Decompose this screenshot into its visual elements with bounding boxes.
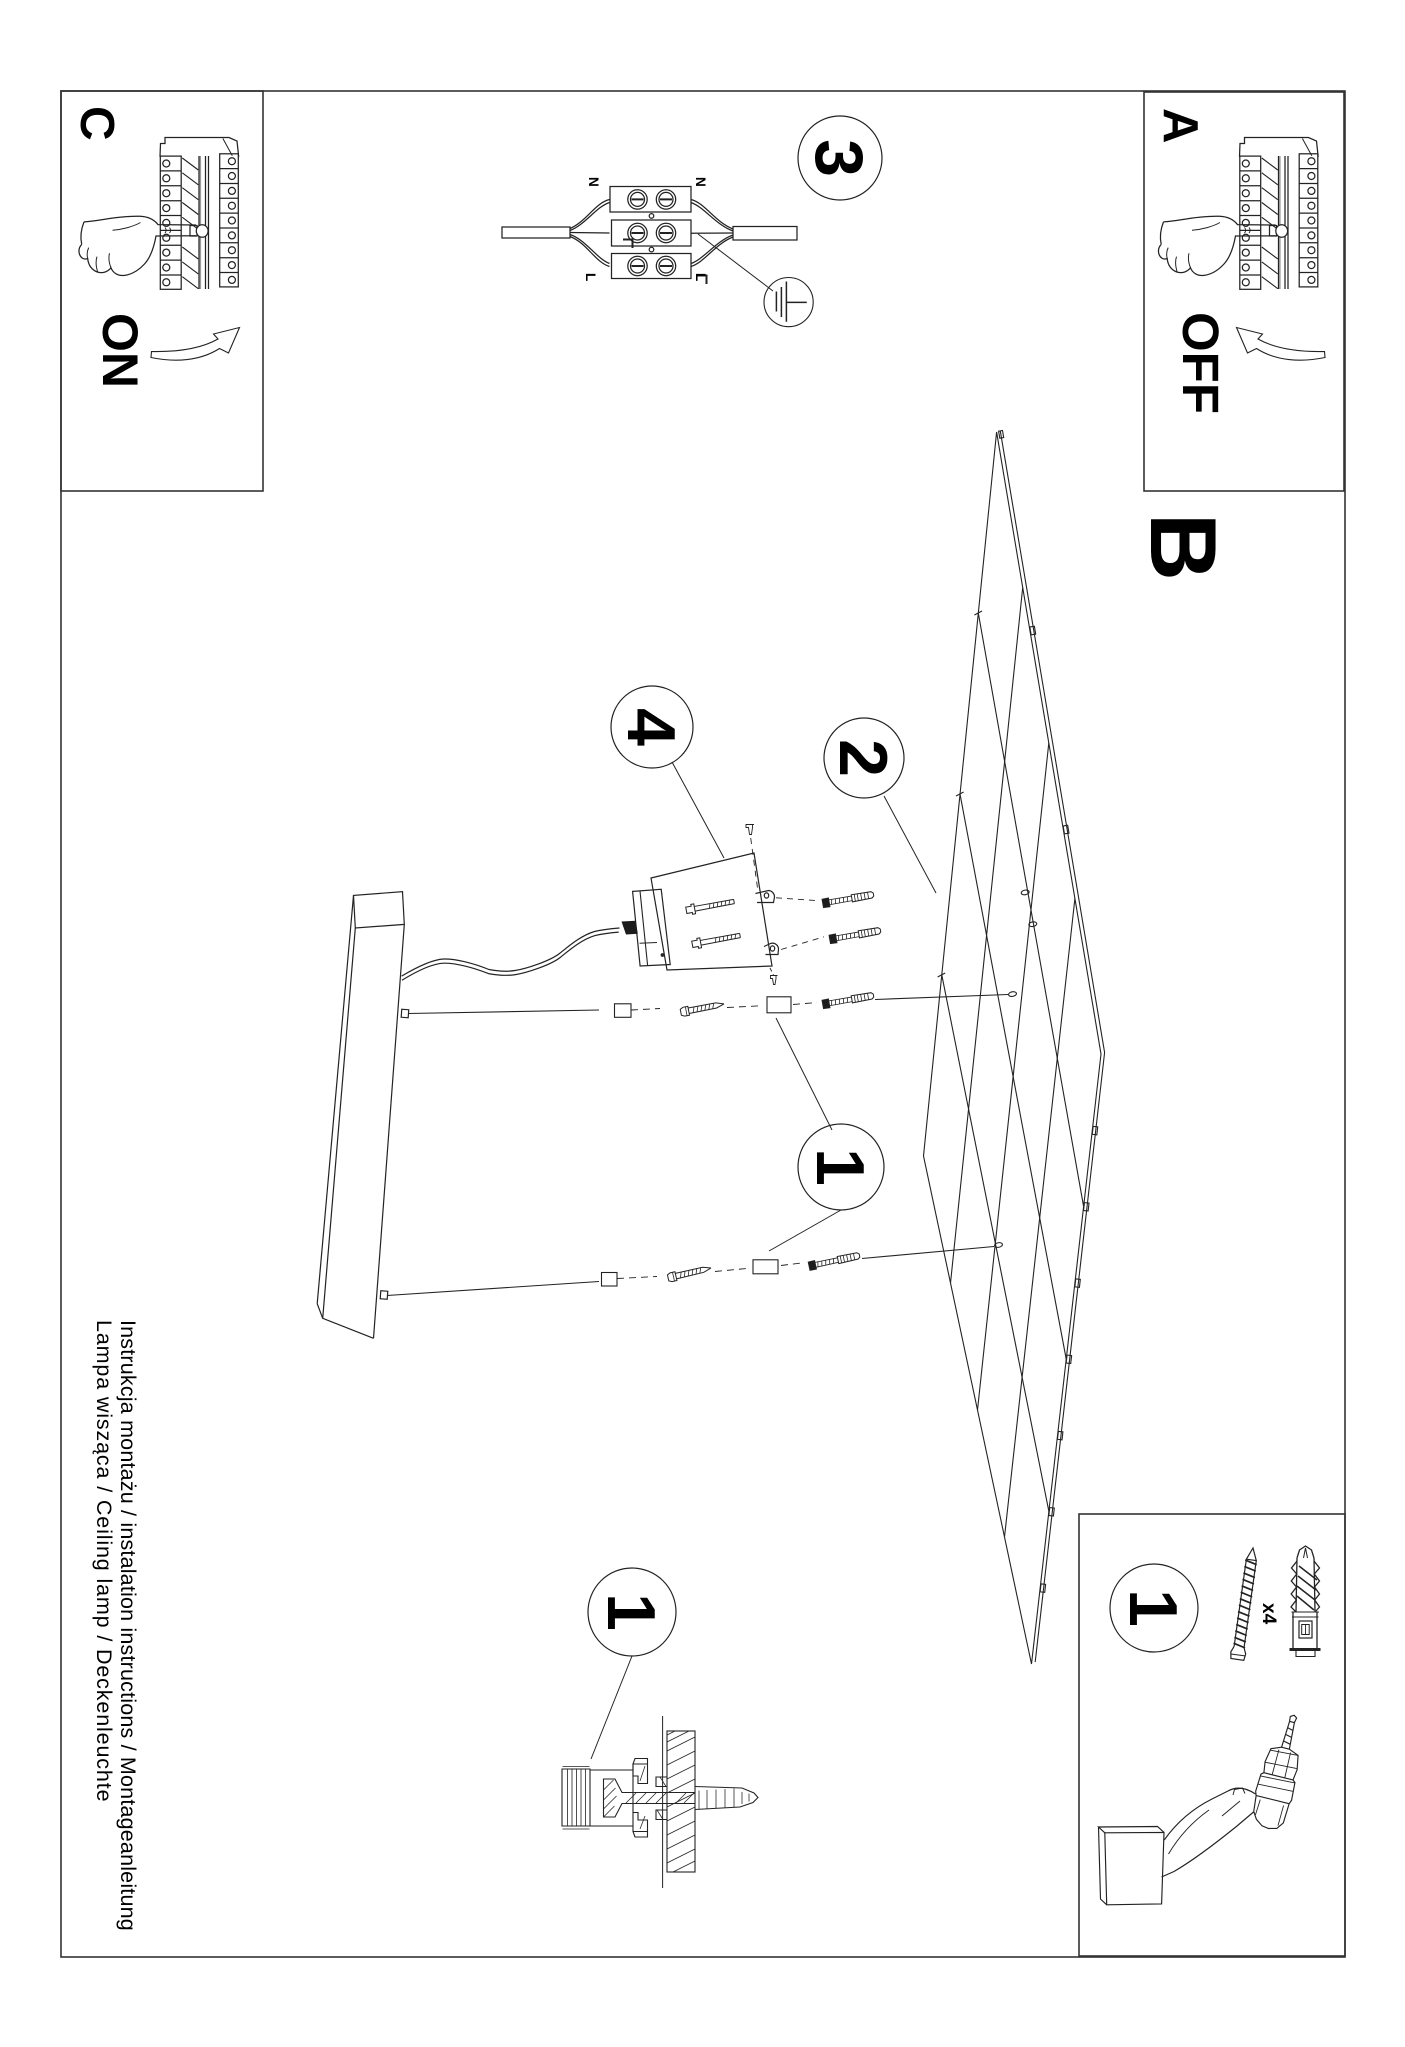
svg-text:Instrukcja montażu / instalati: Instrukcja montażu / instalation instruc… (116, 1320, 140, 1931)
svg-text:N: N (586, 177, 601, 187)
svg-text:L: L (583, 273, 598, 281)
svg-text:C: C (70, 106, 123, 141)
svg-text:OFF: OFF (1172, 312, 1229, 414)
svg-text:L: L (693, 273, 708, 281)
svg-text:A: A (1153, 108, 1207, 143)
svg-text:1: 1 (593, 1593, 669, 1631)
svg-text:ON: ON (92, 313, 148, 388)
svg-text:x4: x4 (1258, 1603, 1279, 1625)
svg-text:N: N (693, 177, 708, 187)
svg-text:2: 2 (825, 739, 901, 777)
svg-text:Lampa wisząca / Ceiling lamp /: Lampa wisząca / Ceiling lamp / Deckenleu… (92, 1320, 116, 1802)
svg-text:B: B (1131, 513, 1236, 581)
svg-text:3: 3 (801, 139, 877, 177)
svg-text:1: 1 (1115, 1589, 1191, 1627)
svg-text:1: 1 (802, 1148, 878, 1186)
svg-text:4: 4 (613, 708, 689, 746)
